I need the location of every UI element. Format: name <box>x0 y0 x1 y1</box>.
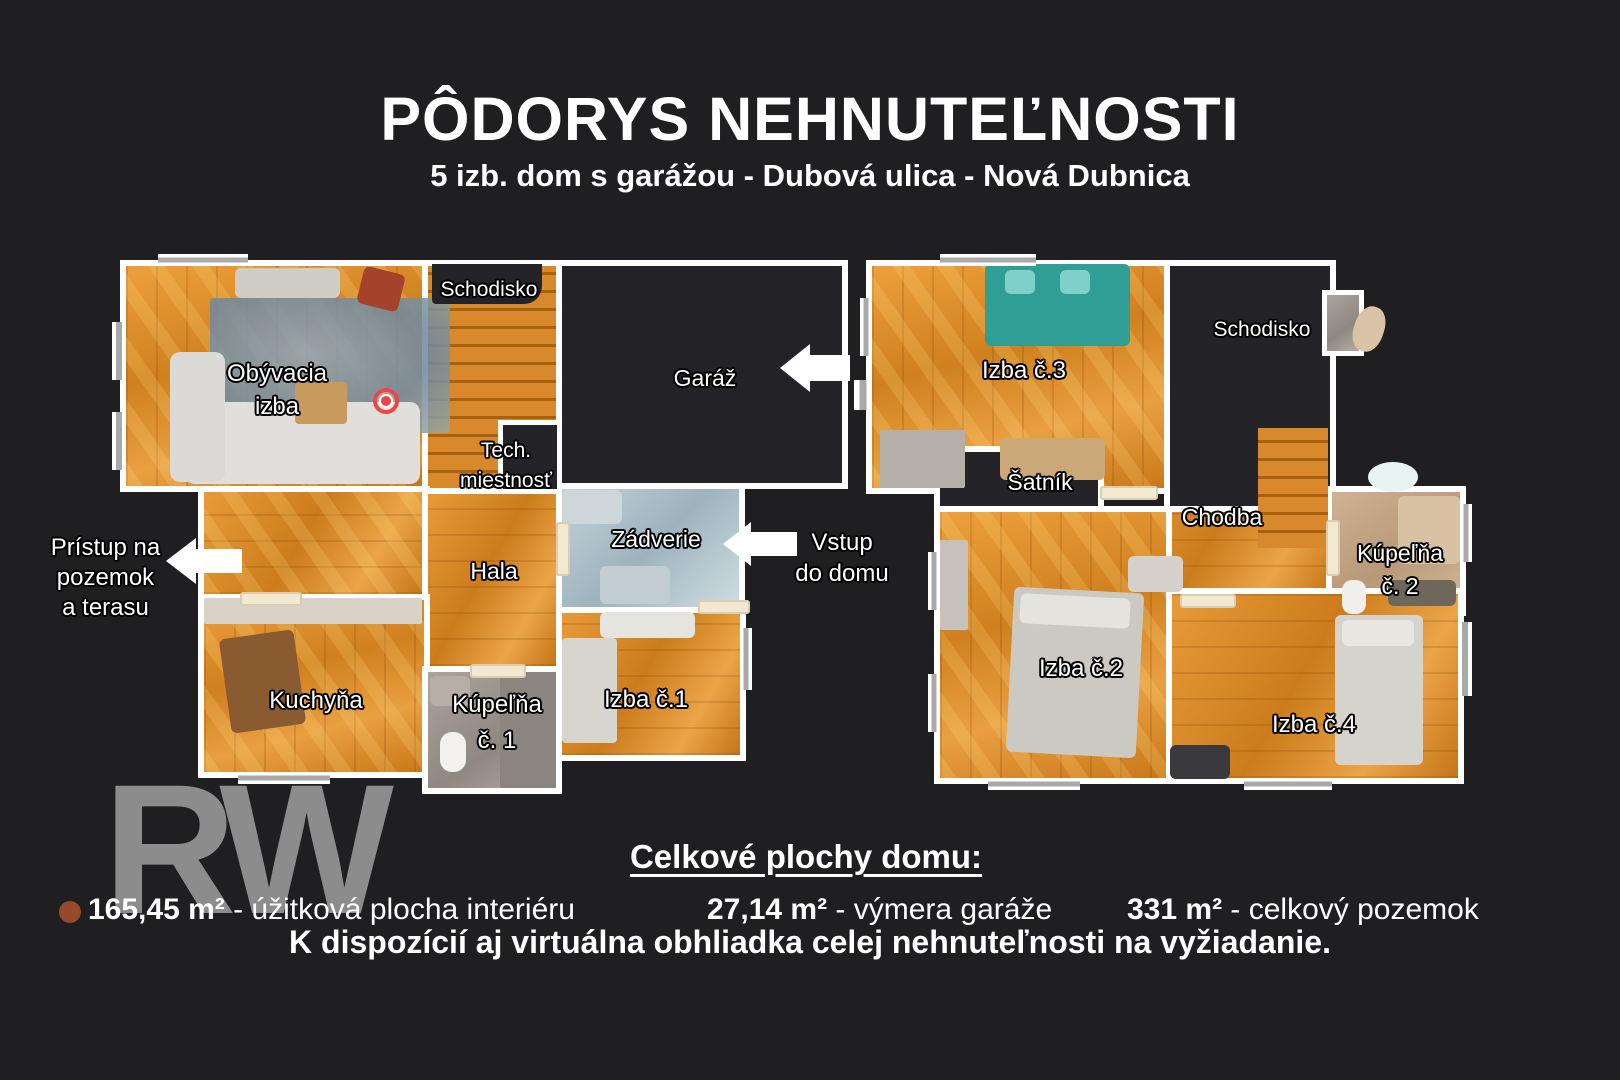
door-sill <box>698 600 750 614</box>
bedroom4-pillow <box>1342 620 1414 646</box>
bedroom3-cushion <box>1060 270 1090 294</box>
area-interior-value: 165,45 m² <box>88 893 225 926</box>
window <box>158 254 248 266</box>
window <box>740 628 752 690</box>
area-garage-value: 27,14 m² <box>707 893 827 926</box>
camera-360-marker <box>373 388 399 414</box>
bedroom2-pillow <box>1019 593 1130 629</box>
bedroom2-closet <box>940 540 968 630</box>
access-annotation: Prístup na pozemok a terasu <box>28 533 183 623</box>
window <box>988 778 1080 790</box>
page-subtitle: 5 izb. dom s garážou - Dubová ulica - No… <box>0 158 1620 194</box>
label-hall: Hala <box>444 557 544 586</box>
kitchen-counter <box>204 598 422 624</box>
access-arrow-icon <box>166 538 242 584</box>
label-corridor: Chodba <box>1152 503 1292 532</box>
label-bedroom-1: Izba č.1 <box>576 685 716 715</box>
area-plot-label: - celkový pozemok <box>1222 893 1479 926</box>
label-bedroom-3: Izba č.3 <box>944 356 1104 386</box>
label-garage: Garáž <box>655 364 755 393</box>
area-interior-label: - úžitková plocha interiéru <box>225 893 575 926</box>
door-sill <box>240 592 302 606</box>
bedroom3-cushion <box>1005 270 1035 294</box>
brand-dot-icon <box>59 901 81 923</box>
door-sill <box>470 664 526 678</box>
bedroom4-dresser <box>1170 745 1230 779</box>
label-living: Obývaciaizba <box>197 357 357 423</box>
garage-arrow-icon <box>780 344 850 392</box>
page-title: PÔDORYS NEHNUTEĽNOSTI <box>0 84 1620 154</box>
area-garage: 27,14 m² - výmera garáže <box>707 893 1052 927</box>
label-vestibule: Zádverie <box>586 525 726 554</box>
area-garage-label: - výmera garáže <box>827 893 1052 926</box>
label-kitchen: Kuchyňa <box>236 686 396 716</box>
window <box>112 412 126 470</box>
bedroom3-rug <box>880 430 965 488</box>
window <box>928 674 940 732</box>
label-staircase-1: Schodisko <box>429 277 549 303</box>
door-sill <box>556 522 570 576</box>
label-closet: Šatník <box>970 468 1110 497</box>
area-interior: 165,45 m² - úžitková plocha interiéru <box>88 893 575 927</box>
label-bathroom-1: Kúpeľňač. 1 <box>417 687 577 759</box>
living-console <box>235 268 340 298</box>
window <box>1244 778 1332 790</box>
entrance-arrow-icon <box>723 522 797 566</box>
door-sill <box>1180 594 1236 608</box>
corridor-desk <box>1128 556 1183 592</box>
areas-heading: Celkové plochy domu: <box>606 838 1006 876</box>
floorplan-flyer: PÔDORYS NEHNUTEĽNOSTI 5 izb. dom s garáž… <box>0 0 1620 1080</box>
label-tech: Tech.miestnosť <box>436 436 576 496</box>
vestibule-bench <box>600 566 670 604</box>
label-bedroom-2: Izba č.2 <box>1001 654 1161 684</box>
bedroom1-desk <box>600 612 695 638</box>
window <box>112 322 126 380</box>
window <box>238 772 330 784</box>
window <box>928 552 940 610</box>
label-bathroom-2: Kúpeľňač. 2 <box>1320 537 1480 603</box>
window <box>940 254 1036 266</box>
camera-360-marker-dot <box>379 394 393 408</box>
virtual-tour-note: K dispozícií aj virtuálna obhliadka cele… <box>0 924 1620 961</box>
bath2-plant <box>1368 462 1418 492</box>
window <box>854 380 872 410</box>
label-staircase-2: Schodisko <box>1182 317 1342 343</box>
window <box>860 298 872 356</box>
area-plot: 331 m² - celkový pozemok <box>1127 893 1479 927</box>
kitchen-table <box>219 629 306 734</box>
area-plot-value: 331 m² <box>1127 893 1222 926</box>
window <box>1458 622 1472 696</box>
label-bedroom-4: Izba č.4 <box>1234 710 1394 740</box>
